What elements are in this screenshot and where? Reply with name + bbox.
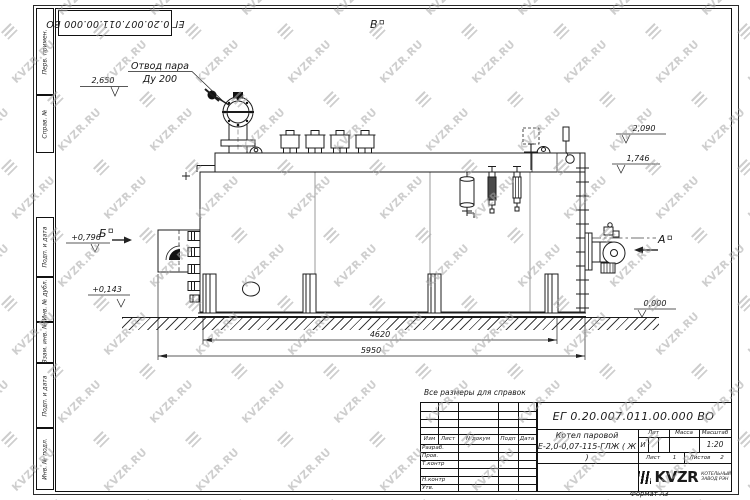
casing-step	[197, 166, 215, 173]
burner-unit	[585, 223, 625, 273]
lug-hole-left	[254, 148, 258, 152]
elev-left-lower: +0,143	[88, 285, 130, 307]
label-text: Отвод пара	[131, 61, 189, 72]
elev-text: 0,000	[644, 299, 667, 308]
elev-text: 1,746	[627, 154, 650, 163]
steam-outlet-valve	[205, 89, 255, 153]
dim-text: 4620	[370, 330, 390, 339]
elev-valve-top: 2,650	[80, 76, 128, 96]
view-letter: В	[370, 18, 378, 31]
view-mark	[109, 229, 113, 233]
view-mark	[380, 21, 384, 25]
view-letter: А	[657, 233, 666, 246]
front-drain-fitting	[182, 172, 190, 180]
view-mark	[668, 236, 672, 240]
drawing-sheet: 4620 5950 Отвод пара Ду 200 2,650 +0,796	[0, 0, 750, 500]
elev-text: 2,090	[633, 124, 656, 133]
view-v-label: В	[370, 18, 384, 31]
view-letter: Б	[99, 227, 107, 240]
top-casing	[215, 153, 585, 172]
casing-fittings	[280, 131, 376, 154]
elev-text: +0,143	[92, 285, 122, 294]
elev-text: +0,796	[71, 233, 101, 242]
elev-right-upper: 2,090	[616, 124, 666, 143]
dim-supports-span: 4620	[203, 318, 557, 344]
view-b-label: Б	[99, 227, 132, 244]
label-text: Ду 200	[142, 74, 177, 85]
dim-text: 5950	[361, 346, 381, 355]
elev-ground: 0,000	[634, 299, 676, 317]
skid-rails	[198, 313, 586, 317]
lug-hole-right	[542, 148, 546, 152]
elev-right-lower: 1,746	[612, 154, 660, 173]
manhole-oval	[243, 282, 260, 296]
boiler-side-view-svg: 4620 5950 Отвод пара Ду 200 2,650 +0,796	[0, 0, 750, 500]
boiler-drawing	[158, 89, 656, 317]
view-a-label: А	[634, 233, 672, 254]
water-level-column	[460, 172, 474, 218]
elev-text: 2,650	[92, 76, 115, 85]
